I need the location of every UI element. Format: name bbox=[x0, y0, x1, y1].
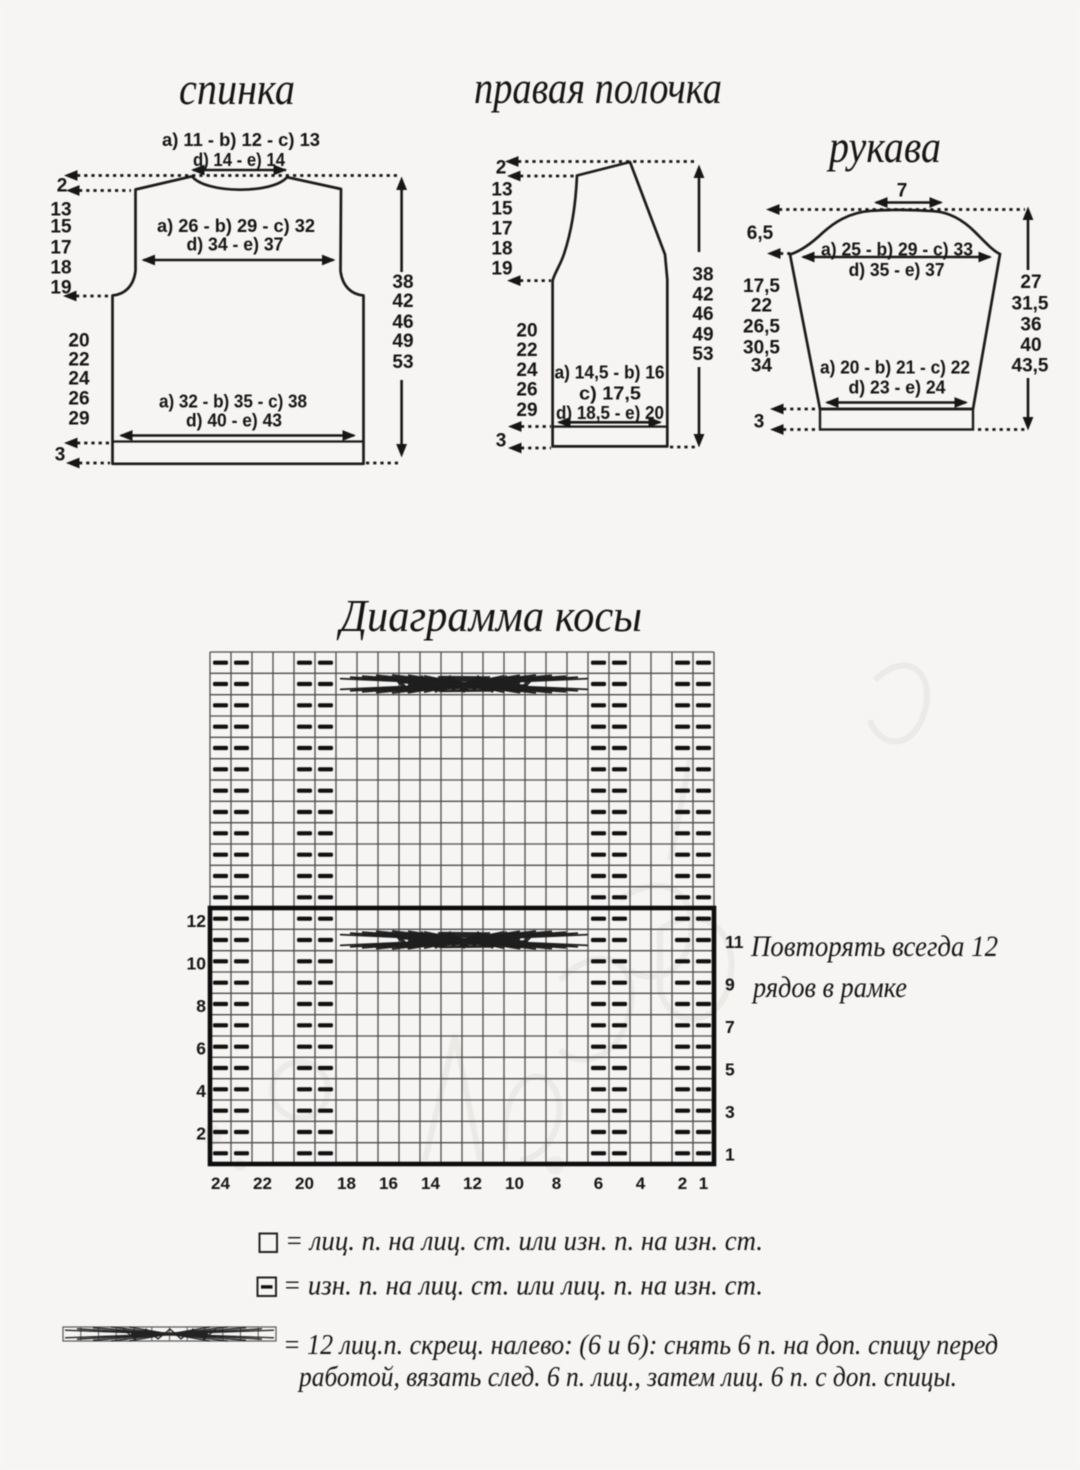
svg-text:19: 19 bbox=[491, 258, 512, 279]
svg-text:31,5: 31,5 bbox=[1012, 293, 1049, 314]
svg-text:36: 36 bbox=[1020, 314, 1041, 335]
svg-text:d) 40 - e) 43: d) 40 - e) 43 bbox=[186, 411, 282, 431]
svg-text:Диаграмма косы: Диаграмма косы bbox=[336, 590, 642, 641]
svg-text:a) 26 - b) 29 - c) 32: a) 26 - b) 29 - c) 32 bbox=[157, 216, 315, 236]
svg-text:46: 46 bbox=[692, 304, 713, 325]
svg-text:22: 22 bbox=[68, 349, 89, 370]
svg-text:43,5: 43,5 bbox=[1012, 355, 1049, 376]
svg-text:49: 49 bbox=[392, 331, 413, 352]
svg-text:6: 6 bbox=[196, 1039, 206, 1059]
svg-text:a) 20 - b) 21 - c) 22: a) 20 - b) 21 - c) 22 bbox=[820, 358, 970, 378]
svg-text:15: 15 bbox=[50, 216, 72, 237]
svg-text:22: 22 bbox=[751, 295, 772, 316]
svg-text:a) 11 - b) 12 - c) 13: a) 11 - b) 12 - c) 13 bbox=[162, 130, 320, 150]
svg-text:9: 9 bbox=[725, 975, 735, 995]
svg-text:17: 17 bbox=[50, 237, 71, 258]
svg-text:34: 34 bbox=[751, 355, 773, 376]
svg-text:53: 53 bbox=[392, 352, 413, 373]
svg-text:24: 24 bbox=[68, 368, 90, 389]
svg-text:7: 7 bbox=[897, 181, 908, 202]
svg-text:Повторять всегда 12: Повторять всегда 12 bbox=[750, 930, 998, 963]
svg-text:3: 3 bbox=[754, 411, 765, 432]
svg-text:d) 18,5 - e) 20: d) 18,5 - e) 20 bbox=[556, 403, 664, 423]
svg-text:c) 17,5: c) 17,5 bbox=[579, 383, 641, 403]
svg-text:d) 35 - e) 37: d) 35 - e) 37 bbox=[849, 260, 945, 280]
svg-text:3: 3 bbox=[496, 430, 507, 451]
svg-text:40: 40 bbox=[1020, 335, 1041, 356]
svg-text:3: 3 bbox=[725, 1102, 735, 1122]
svg-text:работой, вязать след. 6 п. лиц: работой, вязать след. 6 п. лиц., затем л… bbox=[297, 1362, 957, 1393]
svg-text:27: 27 bbox=[1020, 272, 1041, 293]
svg-text:29: 29 bbox=[516, 400, 537, 421]
svg-text:17,5: 17,5 bbox=[743, 276, 780, 297]
svg-text:d) 14 - e) 14: d) 14 - e) 14 bbox=[193, 150, 285, 170]
svg-text:16: 16 bbox=[379, 1174, 398, 1193]
svg-text:рядов в рамке: рядов в рамке bbox=[751, 971, 907, 1004]
svg-text:17: 17 bbox=[491, 218, 512, 239]
svg-text:26: 26 bbox=[516, 379, 537, 400]
svg-text:14: 14 bbox=[421, 1174, 440, 1193]
svg-text:26: 26 bbox=[68, 388, 89, 409]
svg-text:46: 46 bbox=[392, 312, 413, 333]
svg-text:24: 24 bbox=[211, 1174, 230, 1193]
svg-text:5: 5 bbox=[725, 1060, 735, 1080]
svg-text:42: 42 bbox=[692, 284, 713, 305]
svg-text:4: 4 bbox=[196, 1081, 206, 1101]
svg-text:38: 38 bbox=[392, 272, 413, 293]
svg-text:d) 23 - e) 24: d) 23 - e) 24 bbox=[849, 377, 946, 397]
svg-text:49: 49 bbox=[692, 324, 713, 345]
svg-text:19: 19 bbox=[50, 277, 71, 298]
svg-text:правая полочка: правая полочка bbox=[474, 62, 722, 113]
svg-text:a) 14,5 - b) 16: a) 14,5 - b) 16 bbox=[555, 363, 665, 383]
svg-text:10: 10 bbox=[505, 1174, 524, 1193]
svg-text:15: 15 bbox=[491, 198, 513, 219]
svg-text:6: 6 bbox=[594, 1174, 603, 1193]
svg-text:= лиц. п. на лиц. ст. или изн.: = лиц. п. на лиц. ст. или изн. п. на изн… bbox=[285, 1226, 763, 1257]
svg-text:8: 8 bbox=[196, 996, 206, 1016]
svg-text:2: 2 bbox=[196, 1124, 206, 1144]
svg-text:29: 29 bbox=[68, 408, 89, 429]
svg-text:18: 18 bbox=[337, 1174, 356, 1193]
svg-text:= 12 лиц.п. скрещ. налево: (6: = 12 лиц.п. скрещ. налево: (6 и 6): снят… bbox=[283, 1330, 998, 1361]
svg-text:2: 2 bbox=[678, 1174, 687, 1193]
svg-text:26,5: 26,5 bbox=[743, 316, 780, 337]
svg-text:12: 12 bbox=[187, 911, 207, 931]
svg-text:42: 42 bbox=[392, 291, 413, 312]
svg-text:6,5: 6,5 bbox=[747, 223, 774, 244]
svg-text:3: 3 bbox=[55, 444, 66, 465]
svg-text:38: 38 bbox=[692, 264, 713, 285]
svg-text:1: 1 bbox=[725, 1145, 735, 1165]
svg-text:d) 34 - e) 37: d) 34 - e) 37 bbox=[187, 235, 284, 255]
svg-text:2: 2 bbox=[57, 175, 68, 196]
svg-text:a) 32 - b) 35 - c) 38: a) 32 - b) 35 - c) 38 bbox=[159, 392, 307, 412]
svg-text:12: 12 bbox=[463, 1174, 482, 1193]
svg-text:10: 10 bbox=[187, 954, 207, 974]
svg-text:20: 20 bbox=[295, 1174, 314, 1193]
svg-text:4: 4 bbox=[636, 1174, 646, 1193]
svg-text:22: 22 bbox=[253, 1174, 272, 1193]
svg-text:22: 22 bbox=[516, 340, 537, 361]
svg-text:13: 13 bbox=[491, 179, 512, 200]
svg-text:24: 24 bbox=[516, 360, 538, 381]
svg-text:18: 18 bbox=[491, 238, 512, 259]
svg-text:20: 20 bbox=[516, 320, 537, 341]
svg-text:20: 20 bbox=[68, 330, 89, 351]
svg-text:1: 1 bbox=[699, 1174, 708, 1193]
svg-text:11: 11 bbox=[725, 932, 744, 952]
svg-text:= изн. п. на лиц. ст. или лиц.: = изн. п. на лиц. ст. или лиц. п. на изн… bbox=[283, 1271, 763, 1302]
svg-text:спинка: спинка bbox=[179, 63, 295, 114]
svg-text:рукава: рукава bbox=[826, 121, 941, 172]
svg-text:2: 2 bbox=[496, 157, 507, 178]
svg-text:18: 18 bbox=[50, 257, 71, 278]
svg-text:53: 53 bbox=[692, 344, 713, 365]
svg-text:7: 7 bbox=[725, 1017, 735, 1037]
svg-text:8: 8 bbox=[552, 1174, 561, 1193]
